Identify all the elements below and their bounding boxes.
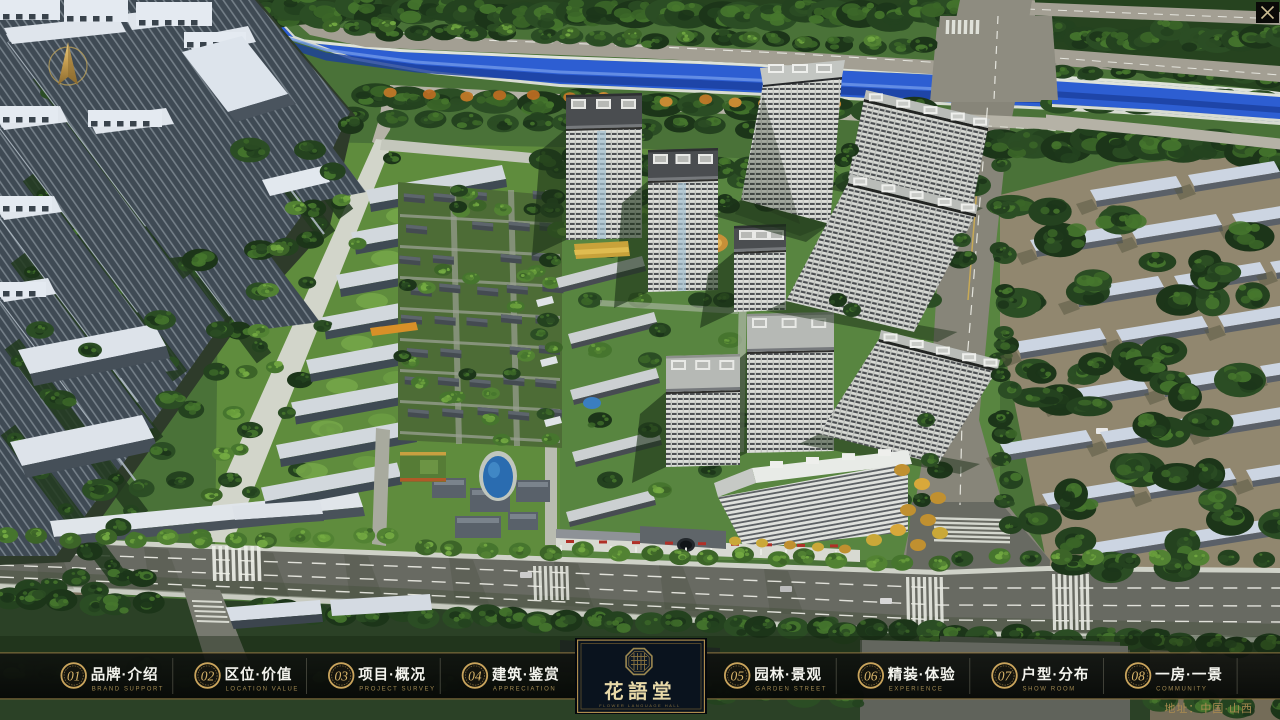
- svg-text:08: 08: [1131, 669, 1145, 684]
- svg-text:SHOW ROOM: SHOW ROOM: [1023, 687, 1076, 693]
- svg-text:GARDEN STREET: GARDEN STREET: [755, 687, 827, 693]
- svg-text:花語堂: 花語堂: [604, 680, 676, 703]
- svg-text:02: 02: [201, 669, 215, 684]
- svg-text:PROJECT SURVEY: PROJECT SURVEY: [359, 687, 436, 693]
- svg-text:01: 01: [67, 669, 81, 684]
- svg-text:03: 03: [334, 669, 348, 684]
- svg-text:户型·分布: 户型·分布: [1022, 666, 1090, 684]
- svg-text:精装·体验: 精装·体验: [888, 666, 956, 684]
- svg-text:07: 07: [998, 669, 1013, 684]
- svg-text:区位·价值: 区位·价值: [225, 666, 293, 684]
- svg-text:品牌·介绍: 品牌·介绍: [91, 666, 159, 684]
- svg-text:APPRECIATION: APPRECIATION: [493, 687, 556, 693]
- svg-text:项目·概况: 项目·概况: [358, 666, 426, 684]
- svg-text:05: 05: [730, 669, 744, 684]
- svg-text:06: 06: [864, 669, 878, 684]
- svg-text:EXPERIENCE: EXPERIENCE: [889, 687, 944, 693]
- svg-text:04: 04: [468, 669, 482, 684]
- svg-text:建筑·鉴赏: 建筑·鉴赏: [492, 666, 560, 684]
- svg-text:FLOWER LANGUAGE HALL: FLOWER LANGUAGE HALL: [599, 703, 681, 708]
- svg-text:COMMUNITY: COMMUNITY: [1156, 687, 1207, 693]
- svg-text:园林·景观: 园林·景观: [754, 666, 822, 684]
- svg-text:LOCATION VALUE: LOCATION VALUE: [226, 687, 300, 693]
- svg-text:一房·一景: 一房·一景: [1155, 666, 1223, 684]
- svg-text:地址：中国·山西: 地址：中国·山西: [1164, 701, 1253, 715]
- svg-text:BRAND SUPPORT: BRAND SUPPORT: [92, 687, 164, 693]
